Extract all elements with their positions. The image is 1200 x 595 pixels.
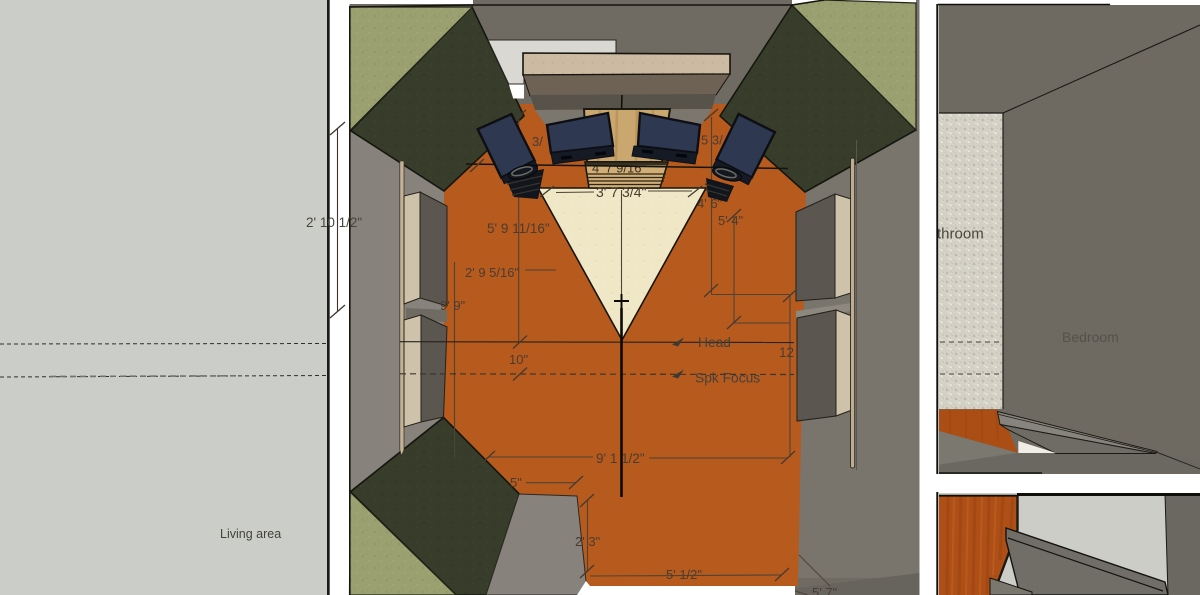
- svg-text:Bedroom: Bedroom: [1062, 329, 1119, 345]
- svg-text:4' 7 9/16": 4' 7 9/16": [592, 161, 646, 176]
- svg-text:2' 9 5/16": 2' 9 5/16": [465, 265, 519, 280]
- svg-text:Living area: Living area: [220, 527, 281, 541]
- svg-text:3' 7 3/4": 3' 7 3/4": [596, 184, 646, 200]
- svg-text:5": 5": [510, 475, 522, 490]
- svg-text:9' 9": 9' 9": [440, 298, 466, 313]
- svg-text:5' 1/2": 5' 1/2": [666, 567, 702, 582]
- svg-text:Head: Head: [698, 335, 731, 350]
- svg-text:3/: 3/: [532, 134, 543, 149]
- svg-text:2' 10 1/2": 2' 10 1/2": [306, 215, 362, 230]
- svg-text:10": 10": [509, 352, 528, 367]
- svg-text:5' 7": 5' 7": [812, 585, 838, 595]
- svg-text:9' 1 1/2": 9' 1 1/2": [596, 451, 645, 466]
- svg-text:5 3/: 5 3/: [701, 133, 723, 148]
- svg-text:5' 9 11/16": 5' 9 11/16": [487, 221, 550, 236]
- svg-text:12: 12: [779, 345, 794, 360]
- svg-text:2' 3": 2' 3": [575, 534, 601, 549]
- svg-text:Spk Focus: Spk Focus: [695, 371, 760, 386]
- svg-text:throom: throom: [937, 226, 984, 243]
- svg-text:5' 4": 5' 4": [718, 213, 744, 228]
